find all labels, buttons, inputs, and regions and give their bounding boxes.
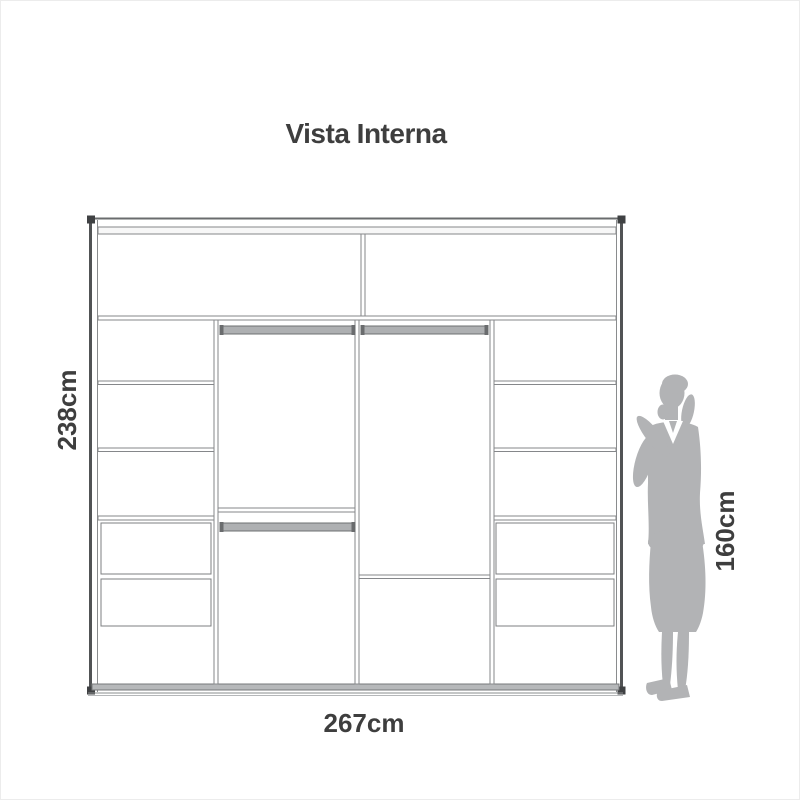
rod-2-cap-left bbox=[220, 522, 224, 532]
left-shelf-2 bbox=[98, 448, 214, 452]
height-dimension-label: 238cm bbox=[51, 350, 83, 470]
person-leg-left bbox=[661, 632, 673, 685]
full-width-shelf bbox=[98, 316, 616, 320]
left-drawer-2 bbox=[101, 579, 211, 626]
hanging-rod-2 bbox=[220, 523, 354, 531]
width-dimension-label: 267cm bbox=[284, 707, 444, 739]
bottom-rail-strip bbox=[92, 684, 619, 690]
right-drawer-2 bbox=[496, 579, 614, 626]
left-drawer-1 bbox=[101, 523, 211, 574]
column-divider-1 bbox=[214, 320, 218, 684]
corner-cap-top-right bbox=[618, 216, 626, 224]
person-silhouette bbox=[628, 375, 705, 702]
rod-2-cap-right bbox=[352, 522, 356, 532]
top-cabinet-divider bbox=[361, 234, 365, 317]
right-shelf-1 bbox=[494, 381, 616, 385]
hanging-rod-3 bbox=[361, 326, 488, 334]
hanging-rod-1 bbox=[220, 326, 354, 334]
column-divider-3 bbox=[490, 320, 494, 684]
rod-3-cap-left bbox=[361, 325, 365, 335]
wardrobe-drawing bbox=[1, 1, 800, 800]
rod-1-cap-right bbox=[352, 325, 356, 335]
person-hand bbox=[658, 405, 669, 420]
top-rail-strip bbox=[98, 227, 616, 234]
person-leg-right bbox=[677, 632, 690, 690]
product-diagram-page: Vista Interna bbox=[0, 0, 800, 800]
left-shelf-1 bbox=[98, 381, 214, 385]
middle-left-shelf bbox=[218, 508, 355, 512]
rod-1-cap-left bbox=[220, 325, 224, 335]
corner-cap-top-left bbox=[87, 216, 95, 224]
right-shelf-3 bbox=[494, 516, 616, 520]
column-divider-2 bbox=[355, 320, 359, 684]
right-shelf-2 bbox=[494, 448, 616, 452]
person-height-label: 160cm bbox=[709, 471, 741, 591]
wardrobe-frame bbox=[87, 216, 626, 696]
person-hair-top bbox=[662, 375, 688, 394]
left-shelf-3 bbox=[98, 516, 214, 520]
middle-right-shelf bbox=[359, 575, 490, 579]
rod-3-cap-right bbox=[485, 325, 489, 335]
right-drawer-1 bbox=[496, 523, 614, 574]
person-skirt bbox=[649, 541, 705, 632]
